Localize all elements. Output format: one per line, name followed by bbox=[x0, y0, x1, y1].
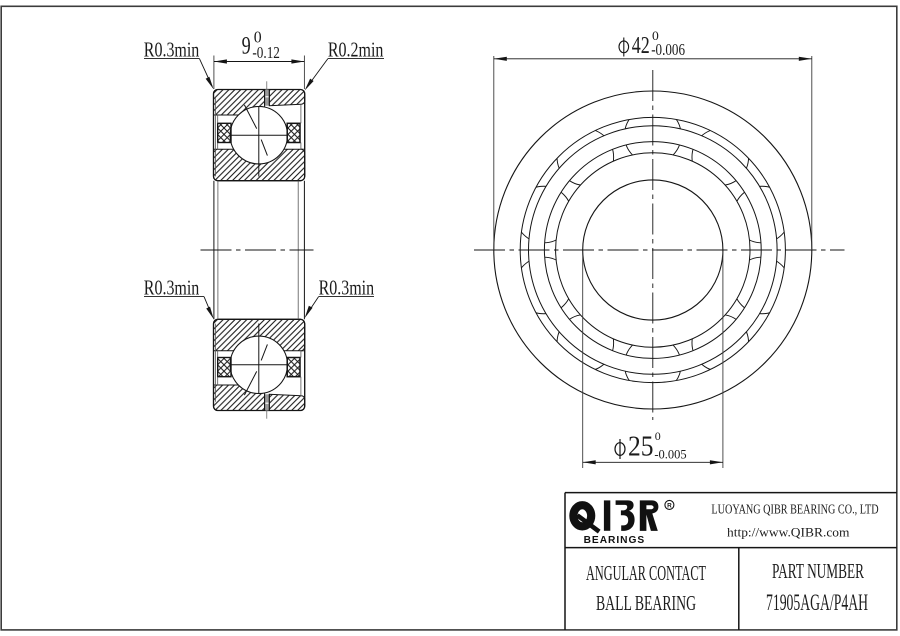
svg-text:R0.3min: R0.3min bbox=[319, 275, 375, 299]
svg-text:0: 0 bbox=[655, 429, 661, 443]
svg-text:R: R bbox=[667, 503, 672, 510]
svg-text:25: 25 bbox=[628, 432, 654, 463]
svg-text:BALL BEARING: BALL BEARING bbox=[596, 591, 696, 615]
svg-text:ANGULAR CONTACT: ANGULAR CONTACT bbox=[586, 561, 706, 585]
svg-text:R0.2min: R0.2min bbox=[328, 37, 384, 61]
svg-text:-0.005: -0.005 bbox=[654, 446, 686, 461]
svg-text:71905AGA/P4AH: 71905AGA/P4AH bbox=[766, 590, 868, 615]
svg-text:-0.12: -0.12 bbox=[252, 43, 280, 62]
svg-text:PART NUMBER: PART NUMBER bbox=[772, 559, 865, 583]
svg-text:R0.3min: R0.3min bbox=[144, 275, 200, 299]
svg-text:http://www.QIBR.com: http://www.QIBR.com bbox=[727, 526, 850, 540]
svg-text:R0.3min: R0.3min bbox=[144, 37, 200, 61]
svg-text:LUOYANG QIBR BEARING CO., LTD: LUOYANG QIBR BEARING CO., LTD bbox=[711, 502, 878, 517]
svg-text:-0.006: -0.006 bbox=[651, 40, 685, 59]
svg-text:9: 9 bbox=[242, 31, 251, 60]
svg-text:42: 42 bbox=[632, 32, 650, 59]
svg-text:BEARINGS: BEARINGS bbox=[584, 535, 645, 546]
